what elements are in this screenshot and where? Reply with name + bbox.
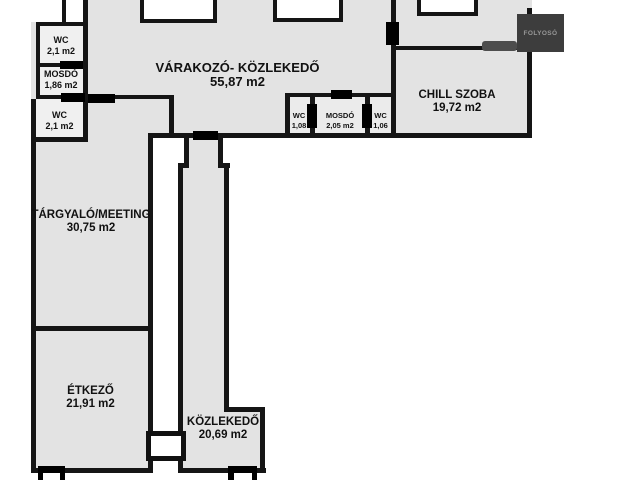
room-name: WC xyxy=(374,111,387,120)
room-name: TÁRGYALÓ/MEETING xyxy=(31,209,150,221)
room-area: 55,87 m2 xyxy=(210,74,265,89)
door-marker-gray xyxy=(482,41,517,51)
room-label-wc-small-left: WC 1,08 xyxy=(288,111,310,131)
room-label-etkezo: ÉTKEZŐ 21,91 m2 xyxy=(33,385,148,411)
door-marker xyxy=(61,93,85,102)
wall xyxy=(169,95,174,138)
room-name: WC xyxy=(52,110,67,120)
door-marker xyxy=(331,90,352,99)
adjacent-room-cutout xyxy=(273,0,343,22)
wall xyxy=(224,407,265,412)
room-label-chill: CHILL SZOBA 19,72 m2 xyxy=(398,89,516,115)
floor-area-corridor-funnel xyxy=(189,138,218,167)
adjacent-room-cutout xyxy=(140,0,217,23)
wall xyxy=(36,22,88,26)
folyoso-label: FOLYOSÓ xyxy=(524,30,558,37)
room-area: 2,05 m2 xyxy=(326,121,354,130)
room-name: MOSDÓ xyxy=(326,111,354,120)
room-area: 2,1 m2 xyxy=(45,121,73,131)
wall xyxy=(31,99,36,473)
floor-plan: FOLYOSÓ WC 2,1 m2 MOSDÓ 1,86 m2 WC 2,1 m… xyxy=(0,0,640,480)
room-name: WC xyxy=(293,111,306,120)
door-opening xyxy=(43,473,60,480)
room-label-mosdo: MOSDÓ 1,86 m2 xyxy=(38,69,84,91)
room-label-wc-small-right: WC 1,06 xyxy=(369,111,392,131)
room-label-mosdo-small: MOSDÓ 2,05 m2 xyxy=(316,111,364,131)
room-area: 19,72 m2 xyxy=(433,102,482,114)
adjacent-room-cutout xyxy=(417,0,478,16)
wall xyxy=(31,137,88,142)
room-area: 21,91 m2 xyxy=(66,398,115,410)
room-label-kozlekedo: KÖZLEKEDŐ 20,69 m2 xyxy=(178,416,268,442)
room-area: 2,1 m2 xyxy=(47,46,75,56)
wall xyxy=(31,326,153,331)
room-name: CHILL SZOBA xyxy=(418,89,495,101)
room-name: KÖZLEKEDŐ xyxy=(187,416,259,428)
room-name: VÁRAKOZÓ- KÖZLEKEDŐ xyxy=(156,60,320,75)
door-opening xyxy=(234,473,252,480)
floor-area-chill xyxy=(396,0,532,138)
wall xyxy=(148,138,153,473)
room-area: 1,86 m2 xyxy=(44,80,77,90)
room-label-wc-top: WC 2,1 m2 xyxy=(38,35,84,57)
room-name: WC xyxy=(54,35,69,45)
door-marker xyxy=(60,61,83,69)
folyoso-badge: FOLYOSÓ xyxy=(517,14,564,52)
door-marker xyxy=(386,22,399,45)
room-area: 20,69 m2 xyxy=(199,429,248,441)
room-name: MOSDÓ xyxy=(44,69,78,79)
door-marker xyxy=(88,94,115,103)
room-name: ÉTKEZŐ xyxy=(67,385,114,397)
room-label-wc-middle: WC 2,1 m2 xyxy=(36,110,83,132)
wall xyxy=(224,167,229,412)
room-label-varakozo: VÁRAKOZÓ- KÖZLEKEDŐ 55,87 m2 xyxy=(130,61,345,89)
room-label-targyalo: TÁRGYALÓ/MEETING 30,75 m2 xyxy=(30,209,152,235)
door-marker xyxy=(193,131,218,140)
wall xyxy=(83,99,88,142)
room-area: 1,06 xyxy=(373,121,388,130)
room-area: 1,08 xyxy=(292,121,307,130)
room-area: 30,75 m2 xyxy=(67,222,116,234)
